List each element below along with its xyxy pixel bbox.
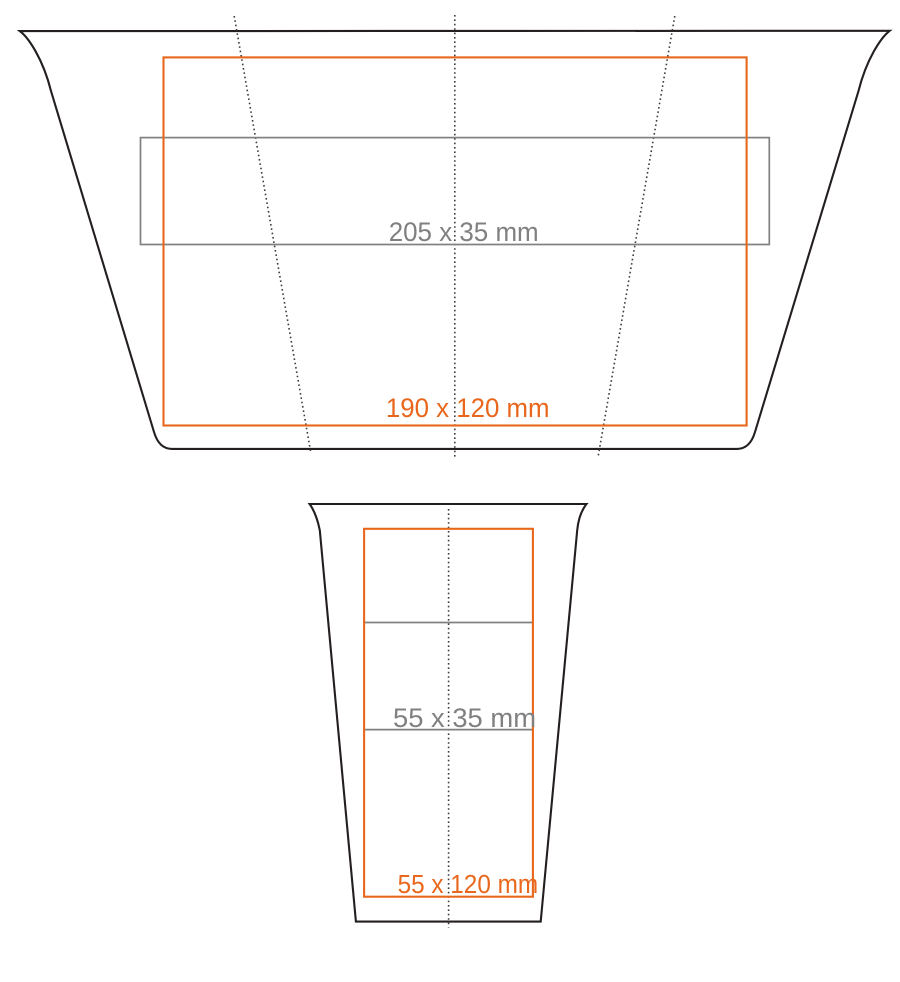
svg-text:205 x 35 mm: 205 x 35 mm bbox=[389, 217, 539, 247]
svg-text:55 x 35 mm: 55 x 35 mm bbox=[393, 703, 536, 733]
svg-text:55 x 120 mm: 55 x 120 mm bbox=[398, 871, 538, 899]
svg-text:190 x 120 mm: 190 x 120 mm bbox=[386, 393, 550, 423]
